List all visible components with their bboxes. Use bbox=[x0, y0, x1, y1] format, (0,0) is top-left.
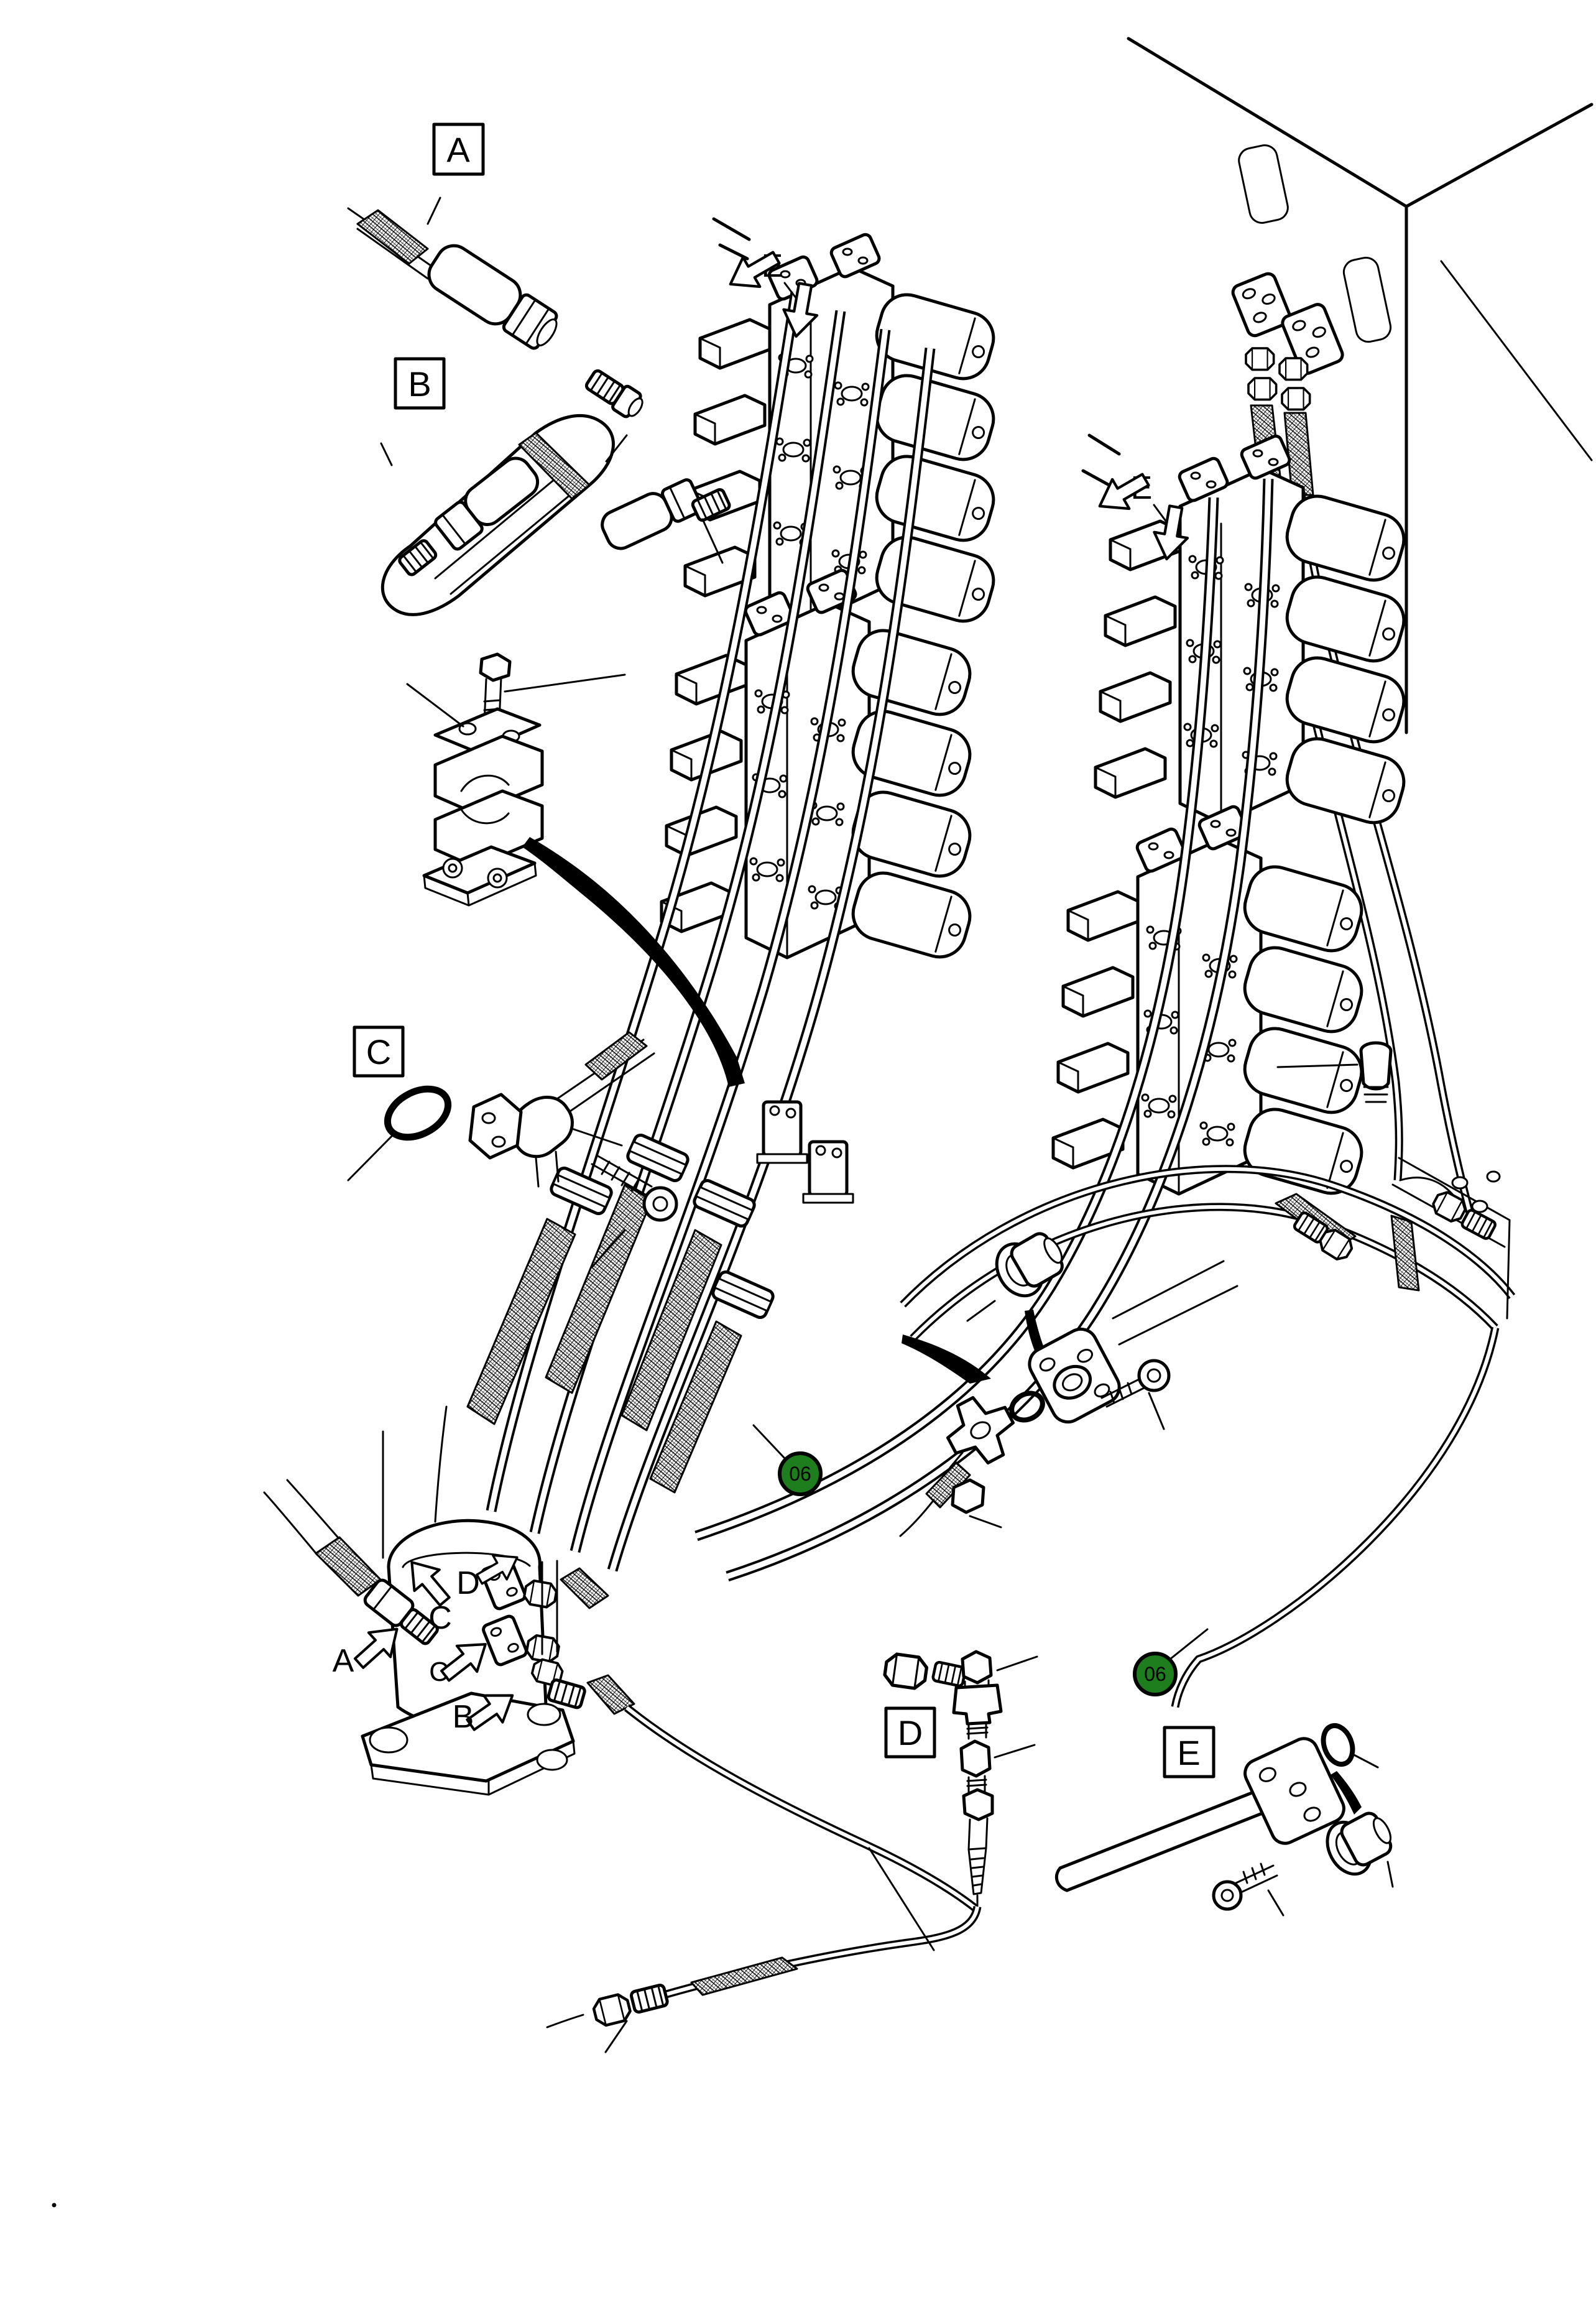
hex-fitting bbox=[1248, 378, 1276, 400]
hex-fitting bbox=[1246, 348, 1274, 370]
detail-a: A bbox=[348, 124, 647, 461]
hex-fitting bbox=[1280, 358, 1308, 380]
hex-fitting bbox=[1282, 388, 1310, 410]
hatch-dashes bbox=[1083, 435, 1119, 484]
leader-line bbox=[407, 684, 463, 726]
panel-cutout bbox=[1237, 143, 1290, 225]
pump-port-label-d: D bbox=[456, 1565, 480, 1601]
detail-e-bottom: E bbox=[1056, 1721, 1400, 1915]
callout-box-e-label: E bbox=[1177, 1733, 1200, 1772]
pump-assembly: A C D C B bbox=[264, 1407, 975, 1908]
callout-box-a-label: A bbox=[446, 130, 470, 169]
hex-nut bbox=[883, 1653, 928, 1690]
nipple-fitting bbox=[583, 367, 647, 422]
nipple-fitting bbox=[1461, 1209, 1497, 1240]
pointer-arrow bbox=[902, 1335, 991, 1384]
leader-line bbox=[348, 1133, 395, 1180]
detail-b: B bbox=[381, 359, 731, 614]
pump-port-label-b: B bbox=[453, 1699, 474, 1735]
flange-bracket bbox=[470, 1094, 521, 1158]
valve-bank-upper-left bbox=[685, 233, 1000, 627]
braided-hose bbox=[1391, 1216, 1419, 1290]
bolt-hole bbox=[537, 1750, 567, 1770]
hose-fitting bbox=[597, 476, 704, 553]
leader-line bbox=[1388, 1862, 1393, 1887]
nut bbox=[953, 1480, 984, 1512]
hydraulic-piping-diagram: E E A B bbox=[0, 0, 1596, 2299]
hex-nut bbox=[961, 1741, 990, 1776]
detail-d: D bbox=[547, 1652, 1037, 2052]
pump-side-fittings bbox=[481, 1559, 634, 1714]
bolt-hole bbox=[528, 1704, 560, 1725]
taper-tip bbox=[969, 1848, 986, 1894]
braided-hose bbox=[316, 1537, 381, 1596]
callout-box-b-label: B bbox=[408, 364, 431, 404]
bolt-hole bbox=[370, 1728, 407, 1752]
hex-fitting bbox=[964, 1790, 992, 1820]
hose-fitting bbox=[422, 239, 565, 355]
badge-text: 06 bbox=[1144, 1663, 1166, 1685]
threads bbox=[967, 1724, 987, 1739]
bolt-shaft bbox=[1236, 1864, 1277, 1893]
clamp-bottom-plate bbox=[424, 847, 535, 893]
panel-cutout bbox=[1342, 256, 1393, 345]
hose-line bbox=[264, 1480, 339, 1555]
tee-top-hex bbox=[962, 1652, 991, 1683]
pump-port-label-c-upper: C bbox=[428, 1600, 452, 1636]
badge-text: 06 bbox=[789, 1463, 811, 1485]
braided-hose bbox=[691, 1958, 797, 1995]
nipple-fitting bbox=[630, 1984, 668, 2013]
nipple-fitting bbox=[398, 539, 437, 576]
nipple-fitting bbox=[933, 1662, 966, 1686]
leader-line bbox=[1268, 1890, 1283, 1915]
pump-port-label-a: A bbox=[333, 1643, 354, 1679]
tee-body bbox=[954, 1685, 1001, 1724]
callout-box-d-label: D bbox=[898, 1713, 923, 1752]
leader-line bbox=[967, 1301, 995, 1321]
leader-line bbox=[754, 1425, 785, 1458]
callout-box-c-label: C bbox=[366, 1032, 391, 1071]
bolt-head bbox=[481, 654, 510, 680]
rod bbox=[1056, 1792, 1262, 1890]
part-badge-06-left: 06 bbox=[754, 1425, 821, 1494]
leader-line bbox=[505, 675, 625, 692]
flange-joint-exploded bbox=[900, 1224, 1237, 1536]
leader-line bbox=[1352, 1754, 1378, 1767]
hatch-dashes bbox=[714, 219, 749, 259]
braided-hose bbox=[561, 1568, 608, 1608]
parts-diagram-page: E E A B bbox=[0, 0, 1596, 2299]
pump-port-label-c-lower: C bbox=[429, 1657, 449, 1687]
stray-dot bbox=[52, 2203, 57, 2208]
